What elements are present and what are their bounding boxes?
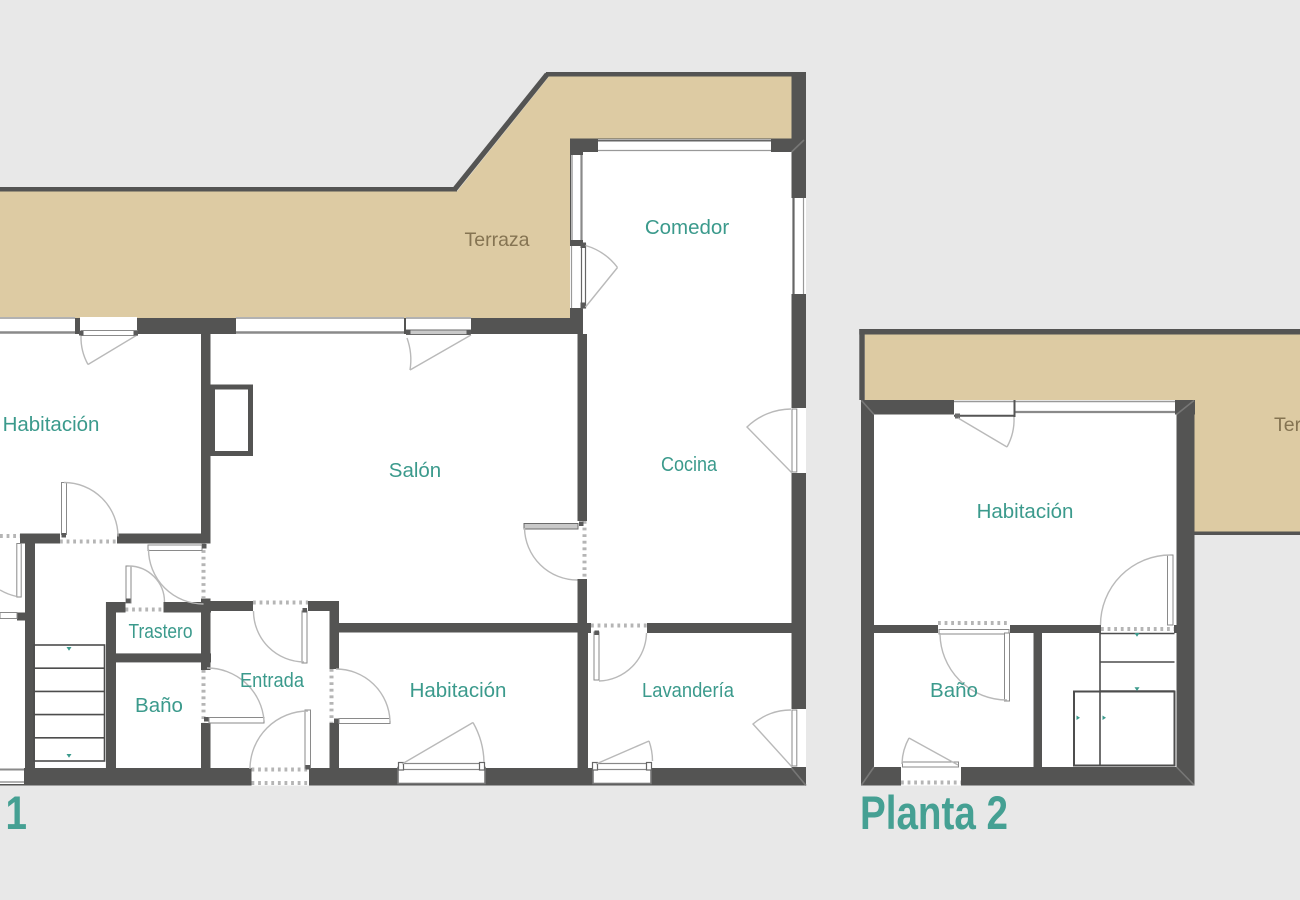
svg-text:Entrada: Entrada — [240, 669, 305, 692]
svg-text:Terraza: Terraza — [464, 229, 529, 251]
svg-text:Habitación: Habitación — [3, 413, 100, 436]
svg-text:Salón: Salón — [389, 459, 441, 482]
svg-text:Lavandería: Lavandería — [642, 679, 735, 702]
svg-text:Habitación: Habitación — [410, 679, 507, 702]
svg-text:Comedor: Comedor — [645, 216, 729, 239]
svg-text:Planta 1: Planta 1 — [0, 787, 27, 840]
svg-text:Baño: Baño — [135, 694, 183, 717]
svg-text:Trastero: Trastero — [129, 620, 193, 643]
svg-text:Planta 2: Planta 2 — [860, 787, 1008, 840]
svg-text:Baño: Baño — [930, 679, 978, 702]
svg-text:Habitación: Habitación — [977, 500, 1074, 523]
svg-text:Cocina: Cocina — [661, 453, 718, 476]
svg-text:Terraza: Terraza — [1274, 414, 1300, 436]
